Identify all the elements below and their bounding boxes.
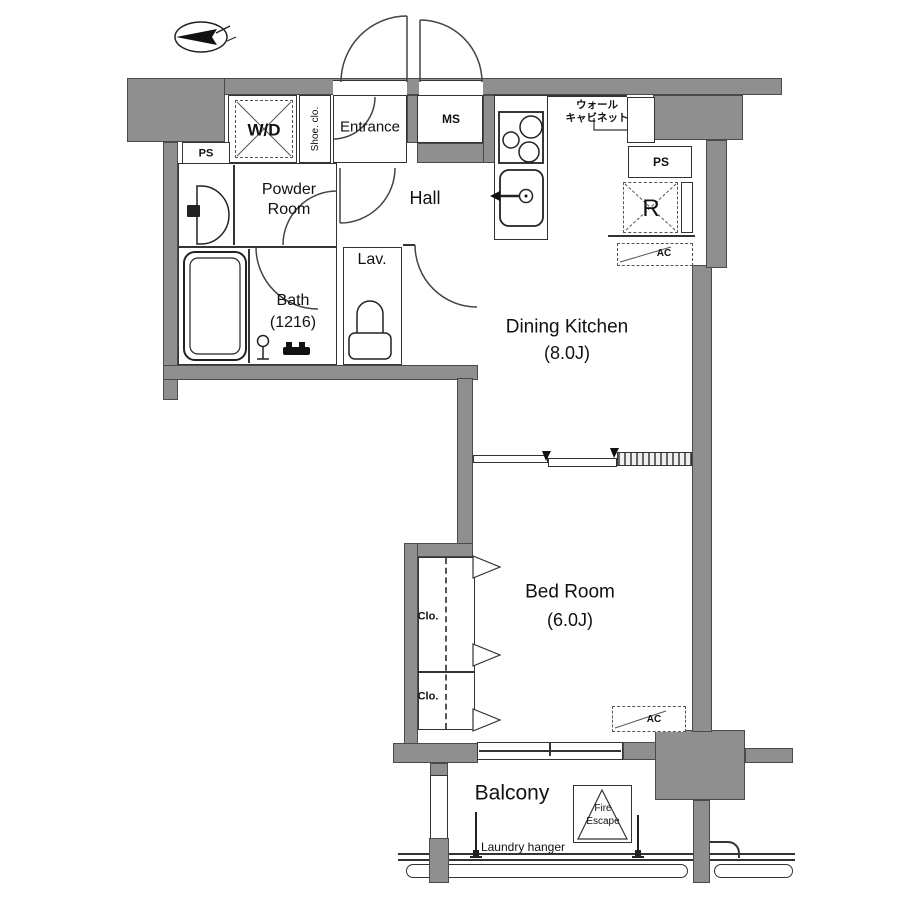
balcony-column-left-base <box>429 838 449 883</box>
label-ps-left: PS <box>199 149 214 160</box>
ac-box-top <box>617 243 693 266</box>
balcony-column-left-mid <box>430 775 448 839</box>
wall-bath-bottom <box>163 365 478 380</box>
wall-bottom-column <box>693 800 710 883</box>
basin-partition-line <box>233 165 235 245</box>
sliding-door-panel <box>548 458 617 467</box>
label-hall: Hall <box>409 189 440 207</box>
label-closet-bottom: Clo. <box>418 692 439 703</box>
label-ps-right: PS <box>653 156 669 168</box>
sliding-door-panel <box>473 455 548 463</box>
balcony-railing-segment <box>714 864 793 878</box>
dk-door-jamb <box>403 244 415 246</box>
wall-bottom-left-foot <box>393 743 478 763</box>
label-wall-cabinet-1: ウォール <box>576 100 618 111</box>
wall-closet-west <box>404 543 418 750</box>
wall-bottom-right-block <box>655 730 745 800</box>
dk-north-line <box>548 95 627 97</box>
label-dining-kitchen: Dining Kitchen <box>506 318 629 337</box>
label-bed-room: Bed Room <box>525 583 615 602</box>
label-powder-1: Powder <box>262 182 316 198</box>
north-arrow-icon <box>175 22 236 52</box>
wall-bed-bottom-right <box>623 742 657 760</box>
wall-right-arm <box>745 748 793 763</box>
wall-under-ms <box>417 143 490 163</box>
wall-right-main <box>692 265 712 732</box>
hall-door-arc <box>340 168 395 223</box>
label-bath-1: Bath <box>277 293 310 309</box>
floor-plan: PS W/D Shoe. clo. Entrance MS ウォール キャビネッ… <box>0 0 920 904</box>
label-shoe-closet: Shoe. clo. <box>311 107 321 151</box>
bath-room <box>178 247 337 365</box>
label-fire-2: Escape <box>586 817 619 827</box>
wall-right-upper <box>706 140 727 268</box>
entrance-door-arc <box>341 16 407 82</box>
closet-dashed-line <box>445 558 447 729</box>
balcony-railing-line <box>398 859 795 861</box>
entrance-door-opening <box>333 80 407 95</box>
label-entrance: Entrance <box>340 120 400 135</box>
closet-door-triangles <box>473 556 500 731</box>
label-wall-cabinet-2: キャビネット <box>566 113 629 124</box>
label-washer-dryer: W/D <box>247 122 280 139</box>
wall-cabinet-box <box>627 97 655 143</box>
ms-door-opening <box>419 80 483 95</box>
label-laundry-hanger: Laundry hanger <box>481 841 565 853</box>
wall-dk-west <box>457 378 473 557</box>
label-ac-top: AC <box>657 249 671 259</box>
label-balcony: Balcony <box>475 783 550 804</box>
window-tick <box>549 743 551 756</box>
label-refrigerator: R <box>642 197 659 221</box>
label-ac-bottom: AC <box>647 715 661 725</box>
powder-room <box>178 163 337 247</box>
fire-escape-box <box>573 785 632 843</box>
kitchen-counter <box>494 95 548 240</box>
wall-left <box>163 142 178 400</box>
label-closet-top: Clo. <box>418 612 439 623</box>
ms-door-arc <box>420 20 482 82</box>
label-powder-2: Room <box>268 202 311 218</box>
label-fire-1: Fire <box>594 804 611 814</box>
tub-partition-line <box>248 249 250 363</box>
wall-top-left-block <box>127 78 225 142</box>
line-below-fridge <box>608 235 695 237</box>
label-bed-size: (6.0J) <box>547 611 593 629</box>
label-lavatory: Lav. <box>357 252 386 268</box>
dk-door-arc <box>415 245 477 307</box>
label-dining-size: (8.0J) <box>544 344 590 362</box>
label-bath-2: (1216) <box>270 315 316 331</box>
label-ms: MS <box>442 113 460 125</box>
fridge-side-strip <box>681 182 693 233</box>
sliding-door-pocket <box>617 452 692 466</box>
balcony-partition-curve <box>708 841 740 858</box>
wall-top-right-block <box>653 95 743 140</box>
